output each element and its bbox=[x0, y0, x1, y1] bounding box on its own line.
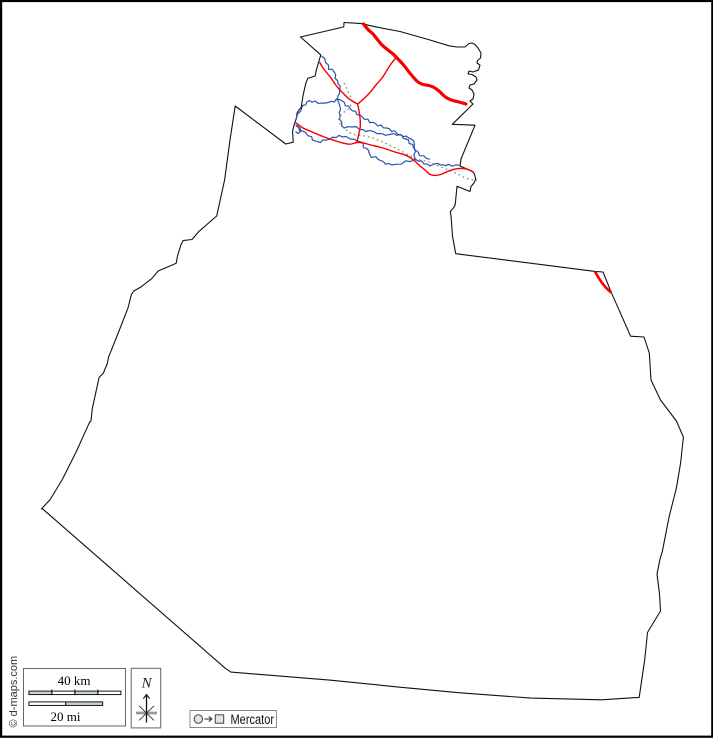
svg-text:N: N bbox=[141, 676, 153, 692]
svg-text:20 mi: 20 mi bbox=[51, 709, 81, 724]
svg-text:40 km: 40 km bbox=[58, 673, 91, 688]
svg-text:Mercator: Mercator bbox=[231, 712, 275, 727]
svg-text:© d-maps.com: © d-maps.com bbox=[8, 656, 20, 728]
